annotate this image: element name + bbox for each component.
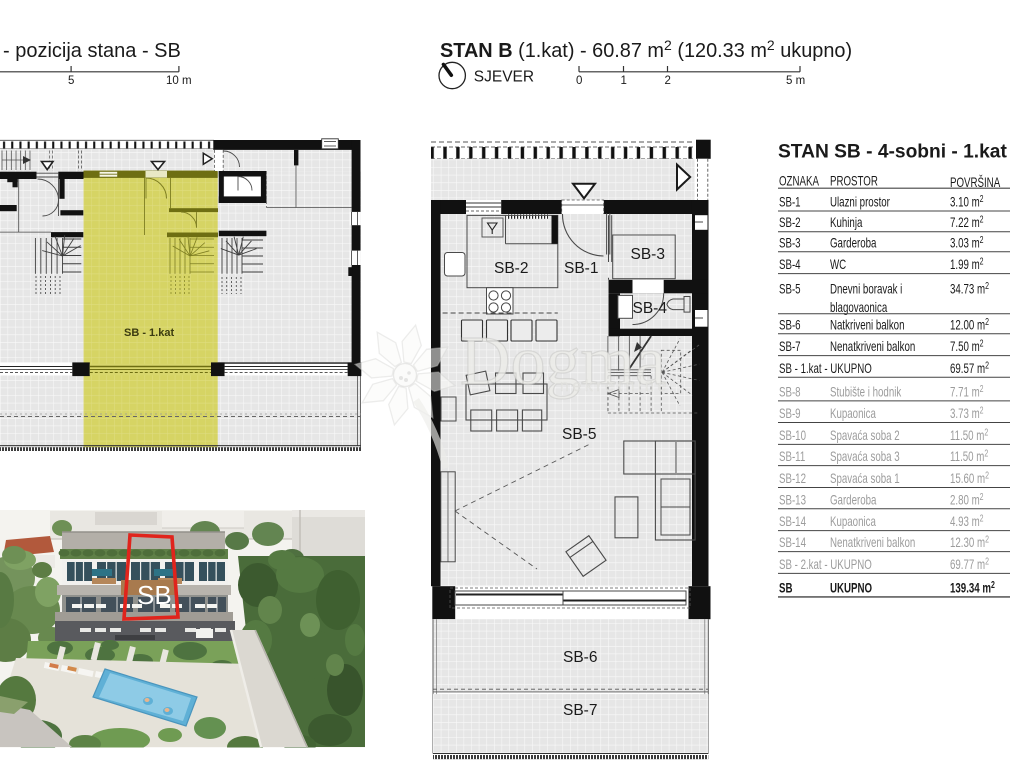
- svg-text:SB-10: SB-10: [779, 428, 806, 443]
- svg-text:SB-14: SB-14: [779, 515, 806, 530]
- svg-text:11.50 m2: 11.50 m2: [950, 426, 989, 443]
- svg-text:SB: SB: [779, 581, 792, 596]
- svg-text:SB-5: SB-5: [779, 282, 801, 297]
- svg-text:7.71 m2: 7.71 m2: [950, 383, 984, 400]
- svg-text:Nenatkriveni balkon: Nenatkriveni balkon: [830, 536, 915, 551]
- svg-text:Kupaonica: Kupaonica: [830, 407, 876, 422]
- svg-text:Spavaća soba 3: Spavaća soba 3: [830, 450, 900, 465]
- svg-text:SB: SB: [137, 580, 172, 610]
- svg-text:3.10 m2: 3.10 m2: [950, 193, 984, 210]
- svg-text:SB-5: SB-5: [562, 426, 596, 443]
- svg-text:SB-7: SB-7: [779, 340, 801, 355]
- svg-text:SB - 1.kat: SB - 1.kat: [124, 327, 174, 339]
- svg-text:Nenatkriveni balkon: Nenatkriveni balkon: [830, 340, 915, 355]
- svg-text:SB-3: SB-3: [631, 246, 665, 263]
- svg-text:UKUPNO: UKUPNO: [830, 581, 872, 596]
- svg-text:5: 5: [68, 75, 74, 87]
- svg-text:2.80 m2: 2.80 m2: [950, 491, 984, 508]
- svg-text:Ulazni prostor: Ulazni prostor: [830, 195, 890, 210]
- svg-text:15.60 m2: 15.60 m2: [950, 469, 989, 486]
- svg-text:SB-8: SB-8: [779, 385, 801, 400]
- svg-text:SB-6: SB-6: [779, 318, 801, 333]
- svg-text:69.57 m2: 69.57 m2: [950, 359, 989, 376]
- svg-text:Spavaća soba 2: Spavaća soba 2: [830, 428, 900, 443]
- svg-text:SB-7: SB-7: [563, 702, 597, 719]
- svg-text:69.77 m2: 69.77 m2: [950, 555, 989, 572]
- svg-text:SB-14: SB-14: [779, 536, 806, 551]
- svg-text:12.00 m2: 12.00 m2: [950, 316, 989, 333]
- svg-text:3.03 m2: 3.03 m2: [950, 234, 984, 251]
- svg-text:SB - 2.kat - UKUPNO: SB - 2.kat - UKUPNO: [779, 557, 872, 572]
- svg-text:Natkriveni balkon: Natkriveni balkon: [830, 318, 904, 333]
- svg-text:4.93 m2: 4.93 m2: [950, 512, 984, 529]
- svg-text:3.73 m2: 3.73 m2: [950, 404, 984, 421]
- svg-text:1: 1: [621, 75, 627, 87]
- svg-text:7.50 m2: 7.50 m2: [950, 337, 984, 354]
- svg-text:SJEVER: SJEVER: [474, 69, 534, 86]
- svg-text:5 m: 5 m: [786, 75, 805, 87]
- svg-text:SB-9: SB-9: [779, 407, 801, 422]
- svg-text:2: 2: [665, 75, 671, 87]
- svg-text:SB-13: SB-13: [779, 493, 806, 508]
- svg-text:nekretnine: nekretnine: [560, 378, 670, 395]
- svg-text:Dnevni boravak i: Dnevni boravak i: [830, 282, 902, 297]
- svg-text:Kuhinja: Kuhinja: [830, 216, 863, 231]
- svg-text:STAN SB - 4-sobni - 1.kat: STAN SB - 4-sobni - 1.kat: [778, 142, 1007, 163]
- svg-text:139.34 m2: 139.34 m2: [950, 579, 995, 596]
- svg-text:SB-3: SB-3: [779, 236, 801, 251]
- svg-text:Garderoba: Garderoba: [830, 236, 877, 251]
- svg-text:SB-1: SB-1: [779, 195, 801, 210]
- svg-text:STAN B (1.kat) - 60.87 m2 (120: STAN B (1.kat) - 60.87 m2 (120.33 m2 uku…: [440, 37, 852, 62]
- svg-text:SB-4: SB-4: [633, 300, 668, 317]
- svg-text:SB-2: SB-2: [779, 216, 801, 231]
- svg-text:0: 0: [576, 75, 582, 87]
- svg-text:11.50 m2: 11.50 m2: [950, 447, 989, 464]
- svg-text:SB-12: SB-12: [779, 472, 806, 487]
- svg-text:10 m: 10 m: [166, 75, 192, 87]
- svg-text:34.73 m2: 34.73 m2: [950, 280, 989, 297]
- svg-text:SB-1: SB-1: [564, 260, 598, 277]
- svg-text:1.99 m2: 1.99 m2: [950, 255, 984, 272]
- svg-text:PROSTOR: PROSTOR: [830, 174, 878, 189]
- svg-text:SB - 1.kat - UKUPNO: SB - 1.kat - UKUPNO: [779, 361, 872, 376]
- svg-text:OZNAKA: OZNAKA: [779, 174, 819, 189]
- svg-text:12.30 m2: 12.30 m2: [950, 533, 989, 550]
- svg-text:SB-6: SB-6: [563, 649, 597, 666]
- svg-text:Spavaća soba 1: Spavaća soba 1: [830, 472, 900, 487]
- svg-text:Kupaonica: Kupaonica: [830, 515, 876, 530]
- svg-text:SB-4: SB-4: [779, 258, 801, 273]
- svg-text:WC: WC: [830, 258, 847, 273]
- svg-text:Stubište i hodnik: Stubište i hodnik: [830, 385, 901, 400]
- svg-text:Garderoba: Garderoba: [830, 493, 877, 508]
- svg-text:SB-2: SB-2: [494, 260, 528, 277]
- svg-text:7.22 m2: 7.22 m2: [950, 214, 984, 231]
- svg-text:- pozicija stana - SB: - pozicija stana - SB: [3, 40, 181, 62]
- svg-text:SB-11: SB-11: [779, 450, 805, 465]
